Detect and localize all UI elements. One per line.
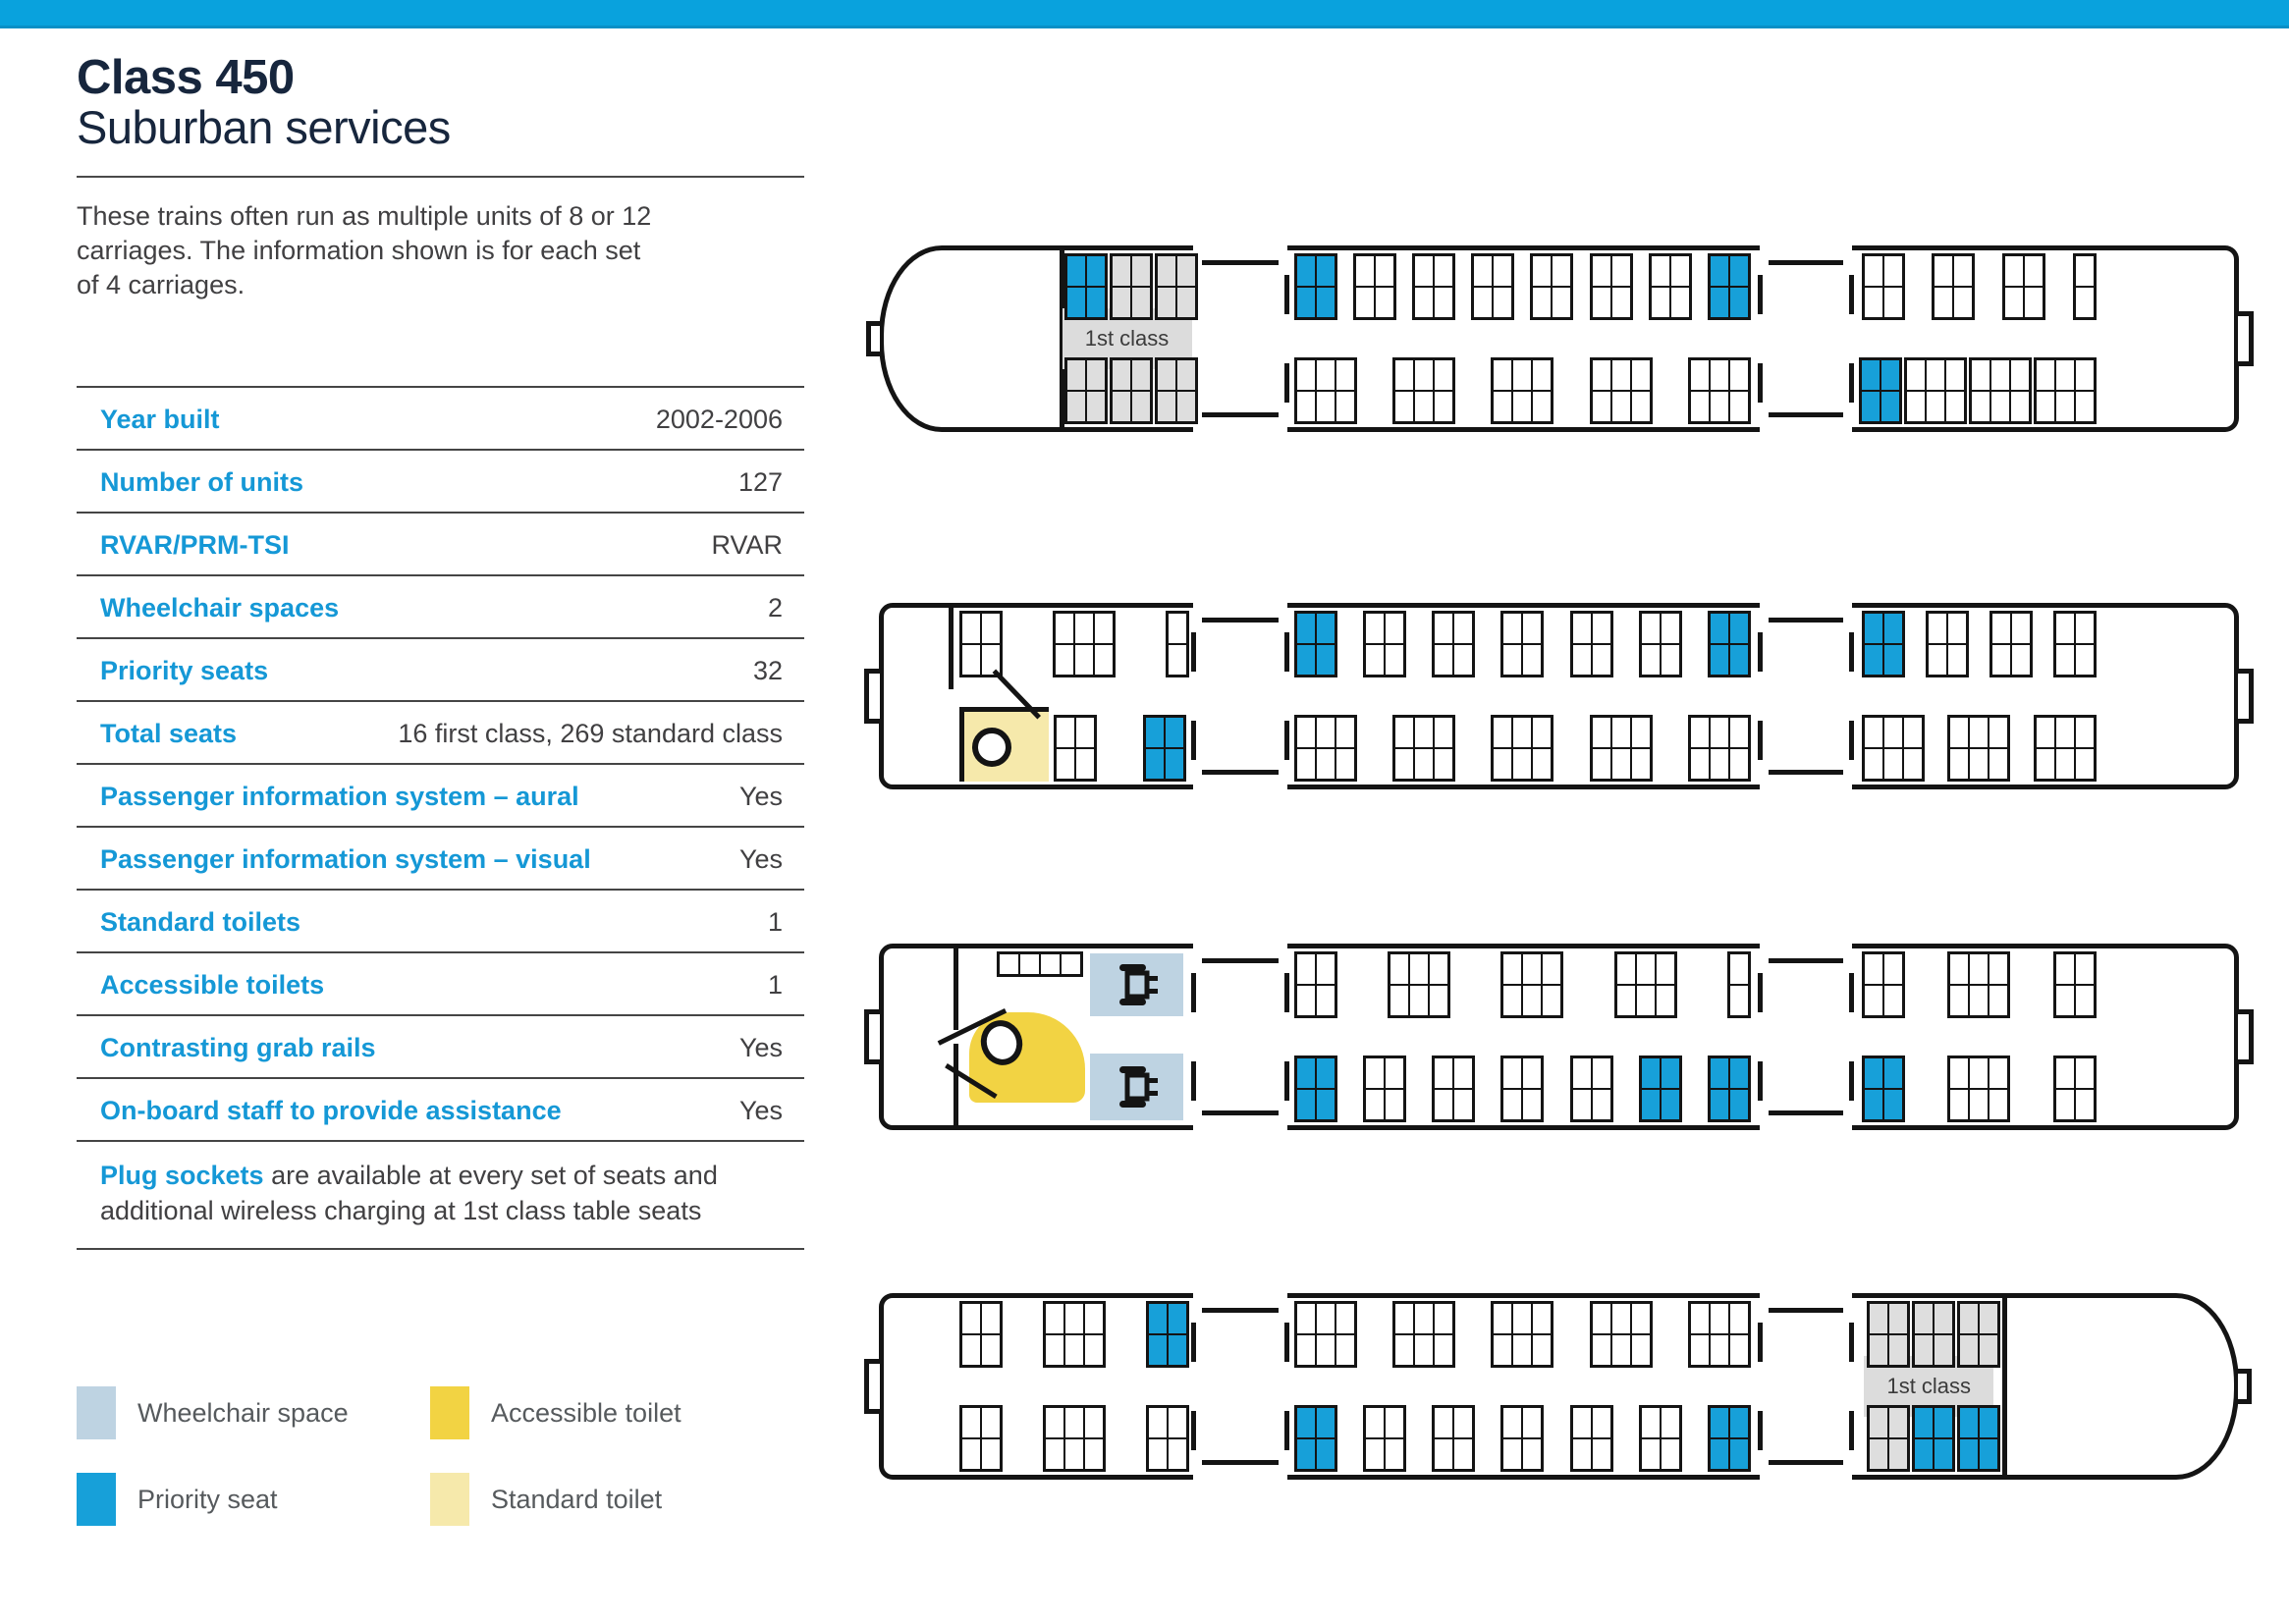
page-title: Class 450 xyxy=(77,53,804,103)
priority-seat-block xyxy=(1294,253,1337,320)
wheelchair-space xyxy=(1090,1054,1183,1120)
door-bar xyxy=(1202,1460,1280,1465)
seat xyxy=(2056,392,2074,421)
seat xyxy=(1513,718,1531,747)
info-panel: Class 450 Suburban services These trains… xyxy=(77,53,804,302)
seat xyxy=(1076,718,1094,747)
standard-seat-block xyxy=(1530,253,1573,320)
door-bar xyxy=(1769,260,1844,265)
priority-seat-swatch xyxy=(77,1473,116,1526)
spec-row-6: Total seats16 first class, 269 standard … xyxy=(77,702,804,765)
gangway-connector xyxy=(2238,669,2254,724)
standard-seat-block xyxy=(1363,611,1406,677)
seat xyxy=(1297,256,1315,286)
standard-seat-block xyxy=(1294,1301,1357,1368)
accessible-toilet-swatch xyxy=(430,1386,469,1439)
seat xyxy=(1642,645,1660,675)
door-edge xyxy=(1284,363,1289,403)
standard-seat-block xyxy=(1989,611,2033,677)
interior-wall xyxy=(949,608,954,689)
seat xyxy=(1513,1304,1531,1333)
seat xyxy=(1395,749,1413,779)
door-vestibule xyxy=(1760,603,1852,789)
seat xyxy=(1884,256,1902,286)
seat xyxy=(1415,392,1433,421)
seat xyxy=(1523,1058,1541,1088)
seat xyxy=(1435,1090,1452,1119)
door-edge xyxy=(1284,1323,1289,1362)
seat xyxy=(1865,288,1882,317)
seat xyxy=(1593,1408,1610,1437)
carriage-3 xyxy=(879,944,2239,1130)
door-edge xyxy=(1849,1323,1854,1362)
standard-seat-block xyxy=(1471,253,1514,320)
note-lead: Plug sockets xyxy=(100,1161,264,1190)
seat xyxy=(982,1335,1000,1365)
seat xyxy=(1317,392,1335,421)
spec-label: Standard toilets xyxy=(100,907,300,938)
seat xyxy=(1935,1439,1952,1469)
seat xyxy=(1376,288,1393,317)
priority-seat-block xyxy=(1143,715,1186,782)
door-edge xyxy=(1849,1411,1854,1450)
spec-value: Yes xyxy=(739,1096,783,1126)
standard-seat-block xyxy=(1862,253,1905,320)
seat xyxy=(1149,1304,1167,1333)
seat xyxy=(1691,360,1709,390)
legend-item-standard-toilet: Standard toilet xyxy=(430,1473,843,1526)
spec-row-5: Priority seats32 xyxy=(77,639,804,702)
seat xyxy=(2005,288,2023,317)
seat xyxy=(1730,718,1748,747)
priority-seat-block xyxy=(1862,1056,1905,1122)
seat xyxy=(1435,1408,1452,1437)
seat xyxy=(1386,1439,1403,1469)
seat xyxy=(1503,645,1521,675)
seat xyxy=(2076,645,2094,675)
seat xyxy=(1533,1335,1551,1365)
seat xyxy=(1950,986,1968,1015)
door-bar xyxy=(1202,1308,1280,1313)
seat xyxy=(1989,1058,2007,1088)
standard-seat-block xyxy=(1500,611,1544,677)
seat xyxy=(1454,1408,1472,1437)
standard-seat-block xyxy=(1590,253,1633,320)
seat xyxy=(1935,1335,1952,1365)
interior-wall xyxy=(954,948,958,1030)
seat xyxy=(1067,288,1085,317)
seat xyxy=(1075,645,1093,675)
seat xyxy=(1390,986,1408,1015)
seat xyxy=(962,614,980,643)
seat xyxy=(1711,1090,1728,1119)
seat xyxy=(1593,1439,1610,1469)
seat xyxy=(1435,1439,1452,1469)
seat xyxy=(1711,614,1728,643)
door-edge xyxy=(1849,632,1854,672)
door-bar xyxy=(1769,770,1844,775)
door-bar xyxy=(1769,1308,1844,1313)
spec-label: Accessible toilets xyxy=(100,970,324,1001)
seat xyxy=(1884,645,1902,675)
seat xyxy=(1046,1335,1063,1365)
seat xyxy=(2076,1090,2094,1119)
seat xyxy=(1865,1090,1882,1119)
seat xyxy=(1065,1408,1083,1437)
seat xyxy=(1915,1304,1933,1333)
seat xyxy=(1730,614,1748,643)
seat xyxy=(1087,360,1105,390)
seat xyxy=(1573,614,1591,643)
priority-seat-block xyxy=(1294,1056,1337,1122)
seat xyxy=(1056,614,1073,643)
seat xyxy=(1970,718,1988,747)
standard-seat-block xyxy=(1043,1301,1106,1368)
seat xyxy=(1146,749,1164,779)
standard-seat-block xyxy=(1043,1405,1106,1472)
seat xyxy=(1970,954,1988,984)
seat xyxy=(1390,954,1408,984)
seat xyxy=(2037,392,2054,421)
door-vestibule xyxy=(1193,603,1287,789)
seat xyxy=(1991,392,2009,421)
seat xyxy=(1395,1335,1413,1365)
seat xyxy=(1884,986,1902,1015)
seat xyxy=(1177,392,1195,421)
priority-seat-block xyxy=(1294,611,1337,677)
seat xyxy=(1336,392,1354,421)
seat xyxy=(1297,749,1315,779)
standard-seat-block xyxy=(1688,715,1751,782)
seat xyxy=(1317,1408,1335,1437)
wheelchair-space xyxy=(1090,953,1183,1016)
standard-seat-block xyxy=(1570,611,1613,677)
seat xyxy=(1395,360,1413,390)
seat xyxy=(1503,1090,1521,1119)
seat xyxy=(1992,614,2010,643)
seat xyxy=(1317,1439,1335,1469)
seat xyxy=(1166,718,1183,747)
seat xyxy=(1884,614,1902,643)
spec-row-2: Number of units127 xyxy=(77,451,804,514)
seat xyxy=(1366,614,1384,643)
first-class-seat-block xyxy=(1867,1301,1910,1368)
seat xyxy=(1711,645,1728,675)
spec-label: Number of units xyxy=(100,467,303,498)
seat xyxy=(1386,614,1403,643)
seat xyxy=(1503,1058,1521,1088)
seat xyxy=(1662,1090,1679,1119)
seat xyxy=(1317,749,1335,779)
seat xyxy=(1454,1090,1472,1119)
seat xyxy=(2056,645,2074,675)
seat xyxy=(1317,645,1335,675)
seat xyxy=(1533,256,1551,286)
standard-seat-block xyxy=(1432,611,1475,677)
spec-value: Yes xyxy=(739,844,783,875)
seat xyxy=(1149,1439,1167,1469)
seat xyxy=(1317,1335,1335,1365)
seat xyxy=(1085,1335,1103,1365)
seat xyxy=(1730,392,1748,421)
seat xyxy=(1435,718,1452,747)
seat xyxy=(1158,288,1175,317)
standard-seat-block xyxy=(959,611,1003,677)
seat xyxy=(1970,1058,1988,1088)
door-bar xyxy=(1202,412,1280,417)
door-edge xyxy=(1758,973,1763,1012)
seat xyxy=(2076,288,2094,317)
door-edge xyxy=(1849,363,1854,403)
seat xyxy=(2025,288,2043,317)
seat xyxy=(1430,954,1447,984)
seat xyxy=(1711,1335,1728,1365)
seat xyxy=(1386,645,1403,675)
seat xyxy=(2037,749,2054,779)
seat xyxy=(1085,1439,1103,1469)
seat xyxy=(1132,392,1150,421)
seat xyxy=(1711,1408,1728,1437)
seat xyxy=(1494,288,1511,317)
seat xyxy=(1612,288,1630,317)
spec-row-12: On-board staff to provide assistanceYes xyxy=(77,1079,804,1142)
tip-up-seat xyxy=(1020,954,1039,974)
seat xyxy=(1730,749,1748,779)
seat xyxy=(1046,1304,1063,1333)
seat xyxy=(1691,1335,1709,1365)
first-class-seat-block xyxy=(1867,1405,1910,1472)
standard-seat-block xyxy=(1947,715,2010,782)
carriage-1: 1st class xyxy=(879,245,2239,432)
door-bar xyxy=(1769,618,1844,623)
seat xyxy=(1870,1408,1887,1437)
seat xyxy=(1317,360,1335,390)
seat xyxy=(1632,718,1650,747)
seat xyxy=(1297,718,1315,747)
seat xyxy=(1454,614,1472,643)
seat xyxy=(1435,256,1452,286)
spec-label: RVAR/PRM-TSI xyxy=(100,530,290,561)
seat xyxy=(1960,1335,1978,1365)
seat xyxy=(1612,360,1630,390)
spec-label: Priority seats xyxy=(100,656,268,686)
seat xyxy=(1980,1408,1997,1437)
door-bar xyxy=(1769,1460,1844,1465)
coupler xyxy=(2238,1369,2252,1404)
seat xyxy=(1533,749,1551,779)
seat xyxy=(1533,392,1551,421)
seat xyxy=(1149,1335,1167,1365)
seat xyxy=(982,1304,1000,1333)
seat xyxy=(1612,1335,1630,1365)
seat xyxy=(1169,1335,1186,1365)
seat xyxy=(1889,1408,1907,1437)
seat xyxy=(1146,718,1164,747)
seat xyxy=(1317,954,1335,984)
seat xyxy=(1730,645,1748,675)
seat xyxy=(1935,1304,1952,1333)
seat xyxy=(1593,1090,1610,1119)
seat xyxy=(1533,1304,1551,1333)
seat xyxy=(1132,288,1150,317)
standard-seat-block xyxy=(1904,357,1967,424)
seat xyxy=(982,614,1000,643)
door-edge xyxy=(1284,721,1289,760)
seat xyxy=(1992,645,2010,675)
carriage-4: 1st class xyxy=(879,1293,2239,1480)
seat xyxy=(1657,954,1674,984)
seat xyxy=(1711,749,1728,779)
seat xyxy=(1513,1335,1531,1365)
seat xyxy=(2076,392,2094,421)
seat xyxy=(1085,1408,1103,1437)
seat xyxy=(1113,288,1130,317)
door-vestibule xyxy=(1193,245,1287,432)
seat xyxy=(1297,1439,1315,1469)
seat xyxy=(1317,288,1335,317)
seat xyxy=(2011,360,2029,390)
seat xyxy=(1553,288,1570,317)
legend-label: Standard toilet xyxy=(491,1485,662,1515)
seat xyxy=(1946,392,1964,421)
seat xyxy=(1474,288,1492,317)
seat xyxy=(2056,1058,2074,1088)
seat xyxy=(2056,749,2074,779)
seat xyxy=(1503,1439,1521,1469)
door-bar xyxy=(1202,260,1280,265)
standard-seat-block xyxy=(1500,1405,1544,1472)
seat xyxy=(1652,288,1669,317)
spec-row-9: Standard toilets1 xyxy=(77,891,804,953)
standard-toilet-swatch xyxy=(430,1473,469,1526)
seat xyxy=(1317,614,1335,643)
seat xyxy=(1336,718,1354,747)
seat xyxy=(1149,1408,1167,1437)
interior-wall xyxy=(2002,1298,2007,1475)
seat xyxy=(1960,1304,1978,1333)
seat xyxy=(1632,1335,1650,1365)
spec-label: Wheelchair spaces xyxy=(100,593,339,623)
door-edge xyxy=(1191,1411,1196,1450)
seat xyxy=(1691,749,1709,779)
door-edge xyxy=(1758,1323,1763,1362)
seat xyxy=(1617,954,1635,984)
spec-row-1: Year built2002-2006 xyxy=(77,388,804,451)
seat xyxy=(1865,749,1882,779)
seat xyxy=(1395,718,1413,747)
door-edge xyxy=(1758,1061,1763,1101)
door-bar xyxy=(1202,618,1280,623)
seat xyxy=(1056,645,1073,675)
priority-seat-block xyxy=(1912,1405,1955,1472)
seat xyxy=(2012,645,2030,675)
seat xyxy=(1169,1408,1186,1437)
door-vestibule xyxy=(1193,1293,1287,1480)
door-bar xyxy=(1769,958,1844,963)
accessible-toilet xyxy=(969,1012,1085,1103)
seat xyxy=(1046,1439,1063,1469)
seat xyxy=(1366,1408,1384,1437)
seat xyxy=(1513,749,1531,779)
seat xyxy=(1533,718,1551,747)
seat xyxy=(1113,256,1130,286)
spec-row-7: Passenger information system – auralYes xyxy=(77,765,804,828)
seat xyxy=(1671,288,1689,317)
seat xyxy=(2076,749,2094,779)
spec-row-10: Accessible toilets1 xyxy=(77,953,804,1016)
seat xyxy=(1297,986,1315,1015)
seat xyxy=(1435,288,1452,317)
seat xyxy=(1523,1439,1541,1469)
seat xyxy=(2012,614,2030,643)
standard-seat-block xyxy=(1432,1056,1475,1122)
seat xyxy=(1711,1058,1728,1088)
seat xyxy=(1671,256,1689,286)
door-edge xyxy=(1758,1411,1763,1450)
spec-row-3: RVAR/PRM-TSIRVAR xyxy=(77,514,804,576)
spec-label: On-board staff to provide assistance xyxy=(100,1096,562,1126)
first-class-seat-block xyxy=(1912,1301,1955,1368)
seat xyxy=(1435,360,1452,390)
seat xyxy=(1642,1439,1660,1469)
seat xyxy=(1435,749,1452,779)
seat xyxy=(1632,749,1650,779)
seat xyxy=(2076,360,2094,390)
tip-up-seat xyxy=(1041,954,1060,974)
spec-value: 2 xyxy=(768,593,783,623)
seat xyxy=(1297,1335,1315,1365)
seat xyxy=(1711,360,1728,390)
seat xyxy=(1593,614,1610,643)
seat xyxy=(1884,954,1902,984)
priority-seat-block xyxy=(1146,1301,1189,1368)
standard-seat-block xyxy=(1570,1405,1613,1472)
seat xyxy=(1691,718,1709,747)
seat xyxy=(1865,718,1882,747)
door-bar xyxy=(1202,770,1280,775)
first-class-seat-block xyxy=(1155,357,1198,424)
door-vestibule xyxy=(1193,944,1287,1130)
seat xyxy=(1730,1090,1748,1119)
seat xyxy=(1612,749,1630,779)
tip-up-seat-strip xyxy=(997,951,1083,977)
door-edge xyxy=(1758,363,1763,403)
standard-seat-block xyxy=(1639,611,1682,677)
standard-seat-block xyxy=(1491,357,1553,424)
standard-seat-block xyxy=(1590,1301,1653,1368)
seat xyxy=(1317,718,1335,747)
seat xyxy=(1989,749,2007,779)
seat xyxy=(1593,645,1610,675)
seat xyxy=(1113,392,1130,421)
seat xyxy=(1632,1304,1650,1333)
standard-seat-block xyxy=(1862,715,1925,782)
seat xyxy=(1523,986,1541,1015)
seat xyxy=(1632,360,1650,390)
seat xyxy=(2056,614,2074,643)
seat xyxy=(1954,288,1972,317)
seat xyxy=(1410,954,1428,984)
seat xyxy=(1904,718,1922,747)
seat xyxy=(1730,256,1748,286)
seat xyxy=(1593,1335,1610,1365)
seat xyxy=(962,1439,980,1469)
seat xyxy=(1691,392,1709,421)
seat xyxy=(1711,1304,1728,1333)
seat xyxy=(1415,288,1433,317)
seat xyxy=(962,645,980,675)
door-edge xyxy=(1849,275,1854,314)
